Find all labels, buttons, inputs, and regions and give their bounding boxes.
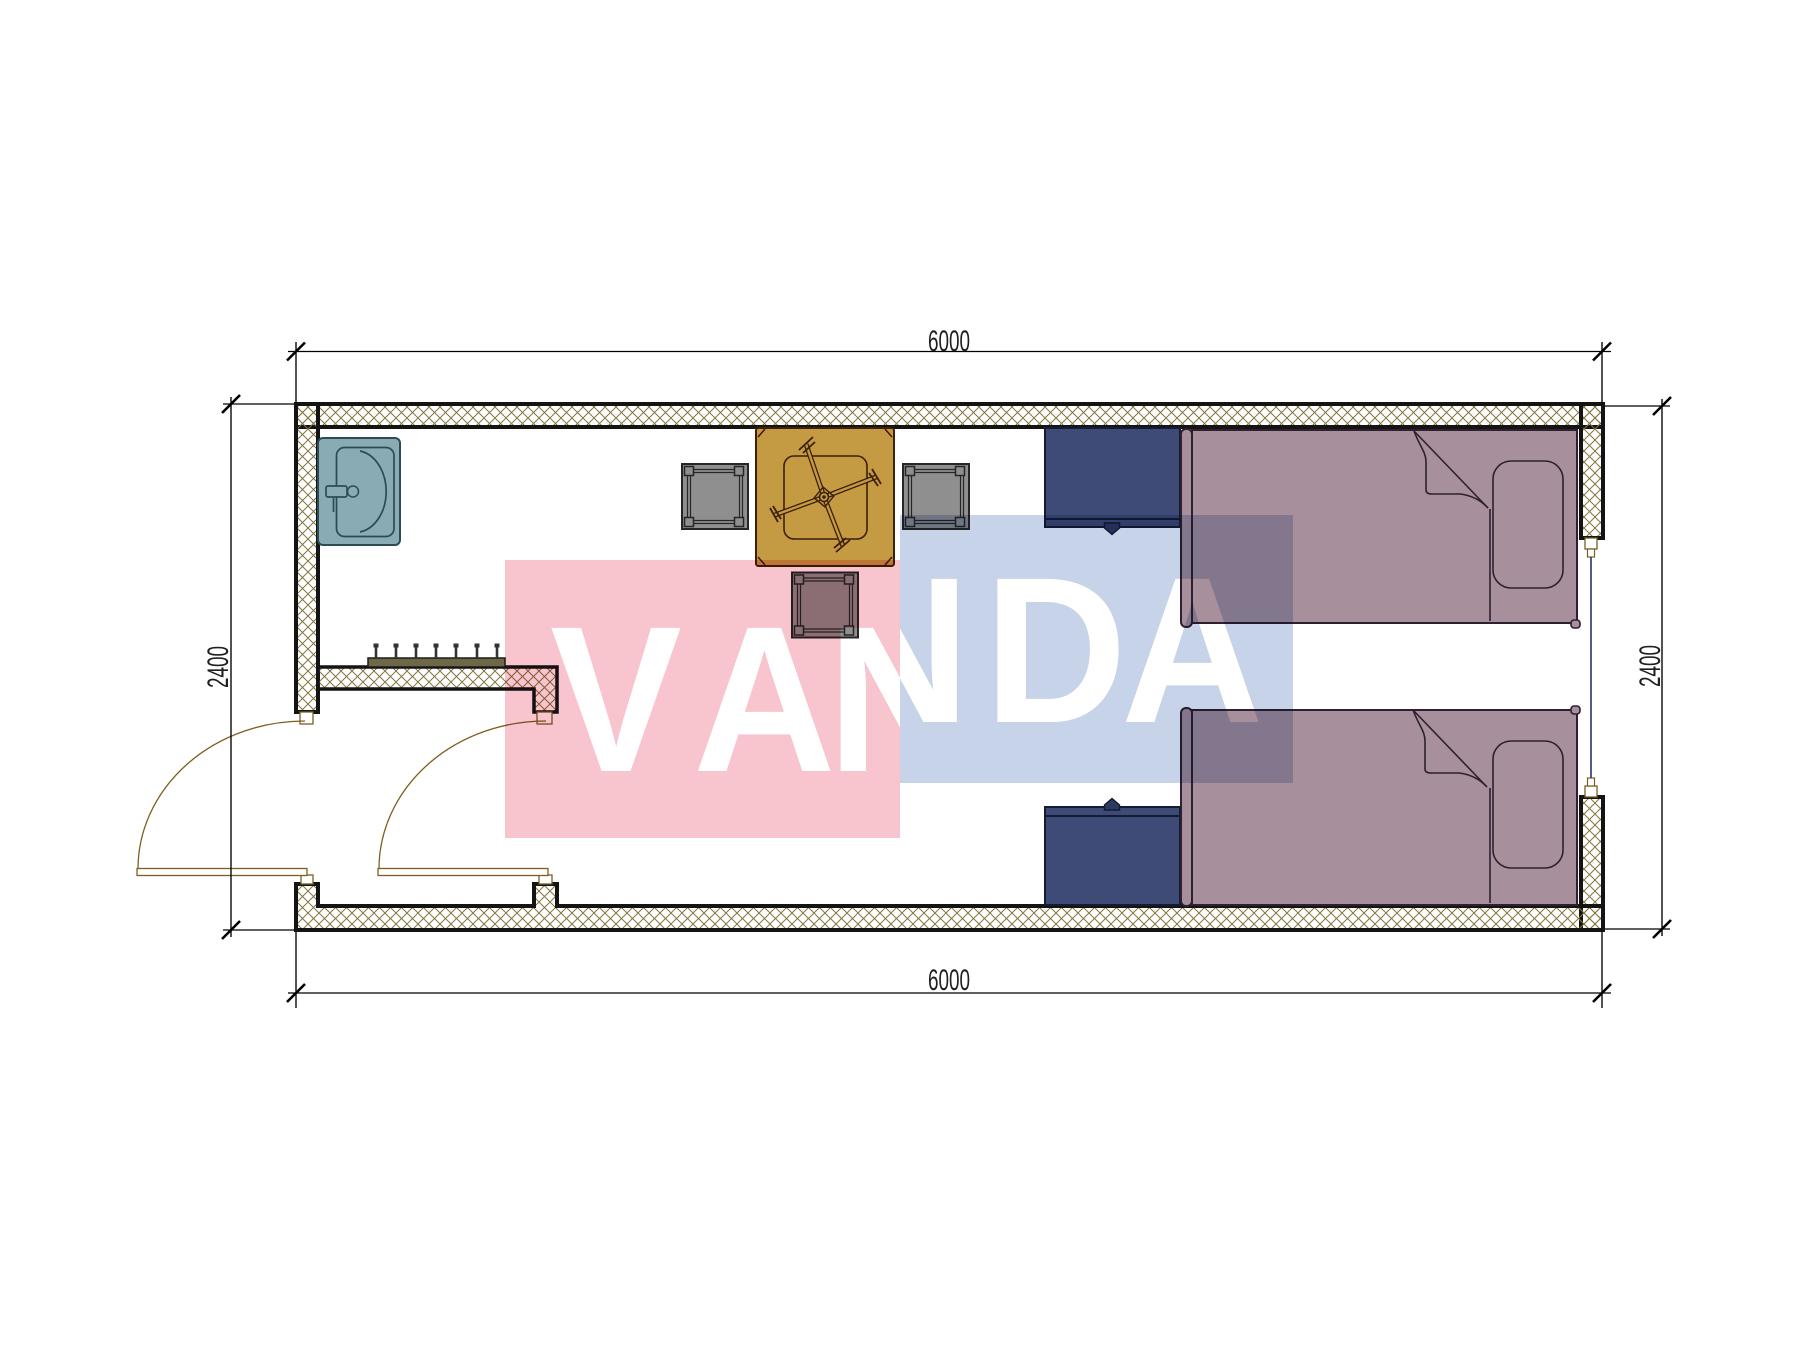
svg-text:2400: 2400 (202, 646, 236, 688)
svg-text:2400: 2400 (1634, 645, 1668, 687)
svg-text:6000: 6000 (928, 964, 970, 998)
svg-text:6000: 6000 (928, 325, 970, 359)
